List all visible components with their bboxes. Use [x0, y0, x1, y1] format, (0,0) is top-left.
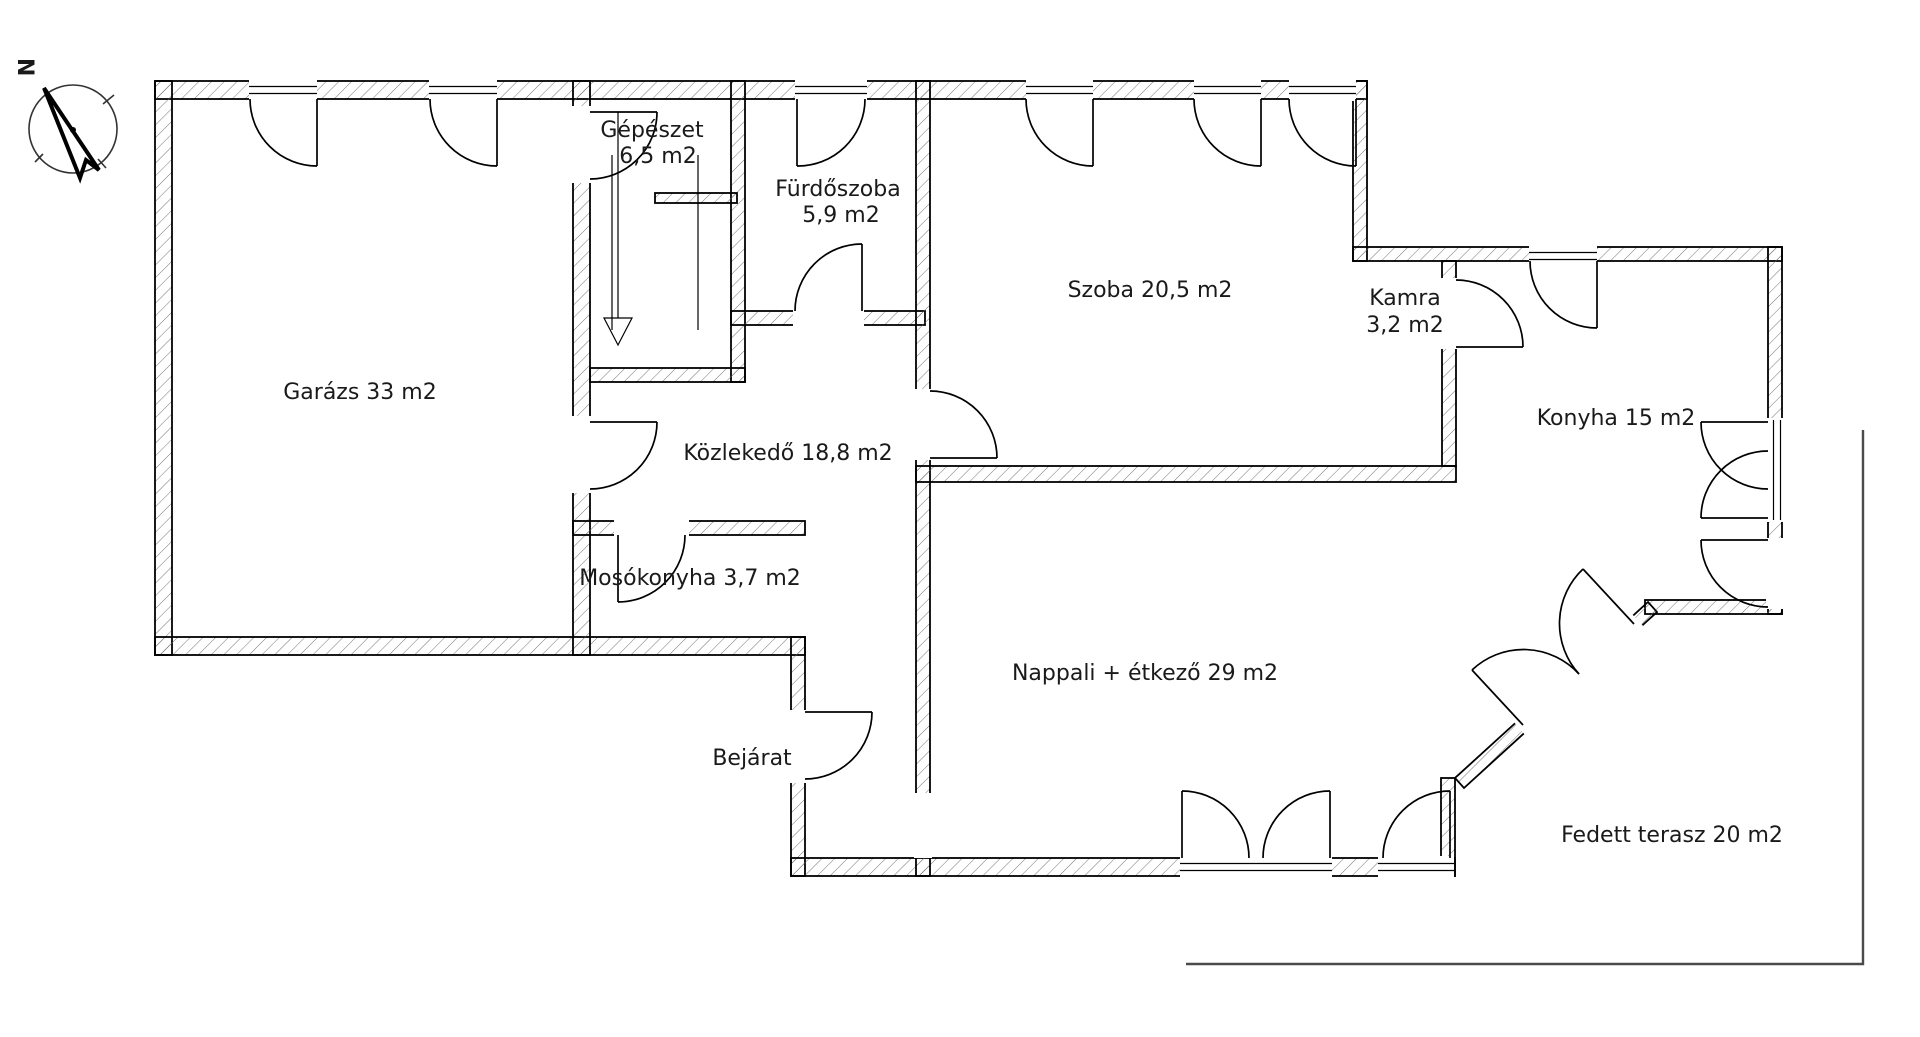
label-bathroom: Fürdőszoba	[775, 177, 900, 202]
door-kitchen-window-top	[1530, 261, 1597, 328]
floor-plan-drawing: N Garázs 33 m2 Gépészet 6,5 m2 Fürdőszob…	[0, 0, 1920, 1037]
door-living-terrace-single	[1383, 791, 1450, 858]
label-mechanical-area: 6,5 m2	[619, 144, 696, 169]
compass-icon: N	[12, 58, 117, 178]
door-entrance	[805, 712, 872, 779]
wall-exterior-left	[155, 81, 172, 655]
label-living-dining: Nappali + étkező 29 m2	[1012, 661, 1278, 686]
label-garage: Garázs 33 m2	[283, 380, 436, 405]
wall-exterior-bottom	[791, 858, 1455, 876]
floor-plan-page: N Garázs 33 m2 Gépészet 6,5 m2 Fürdőszob…	[0, 0, 1920, 1037]
wall-exterior-top	[155, 81, 1367, 99]
door-bedroom	[930, 391, 997, 458]
wall-mechanical-bathroom-divider	[731, 81, 745, 382]
door-garage-window-1	[250, 99, 317, 166]
door-bedroom-window-2	[1194, 99, 1261, 166]
label-mechanical: Gépészet	[600, 118, 704, 143]
label-bathroom-area: 5,9 m2	[802, 203, 879, 228]
label-hallway: Közlekedő 18,8 m2	[683, 441, 892, 466]
stairs-down-arrow-icon	[604, 318, 632, 345]
compass-north-label: N	[12, 58, 37, 76]
wall-bedroom-bottom	[916, 466, 1456, 482]
wall-garage-bottom	[155, 637, 805, 655]
label-pantry: Kamra	[1369, 286, 1440, 311]
wall-mechanical-bottom	[590, 368, 745, 382]
door-bathroom	[795, 244, 862, 311]
door-garage-hallway	[590, 422, 657, 489]
room-labels: Garázs 33 m2 Gépészet 6,5 m2 Fürdőszoba …	[283, 118, 1783, 848]
label-covered-terrace: Fedett terasz 20 m2	[1561, 823, 1783, 848]
label-bedroom: Szoba 20,5 m2	[1068, 278, 1233, 303]
door-bedroom-window-3	[1289, 99, 1356, 166]
label-laundry: Mosókonyha 3,7 m2	[579, 566, 801, 591]
walls	[155, 81, 1782, 876]
door-pantry	[1456, 280, 1523, 347]
label-pantry-area: 3,2 m2	[1366, 313, 1443, 338]
wall-bedroom-right	[1353, 81, 1367, 261]
label-kitchen: Konyha 15 m2	[1537, 406, 1696, 431]
door-bathroom-window	[797, 99, 865, 166]
label-entrance: Bejárat	[712, 746, 792, 771]
door-kitchen-window-right	[1701, 422, 1768, 518]
wall-stair-stub	[655, 193, 737, 203]
door-bedroom-window-1	[1026, 99, 1093, 166]
door-kitchen-terrace	[1701, 540, 1768, 607]
compass-needle	[44, 88, 99, 178]
terrace-outline	[1186, 430, 1863, 964]
door-living-window-pair	[1182, 791, 1330, 858]
door-garage-window-2	[430, 99, 497, 166]
